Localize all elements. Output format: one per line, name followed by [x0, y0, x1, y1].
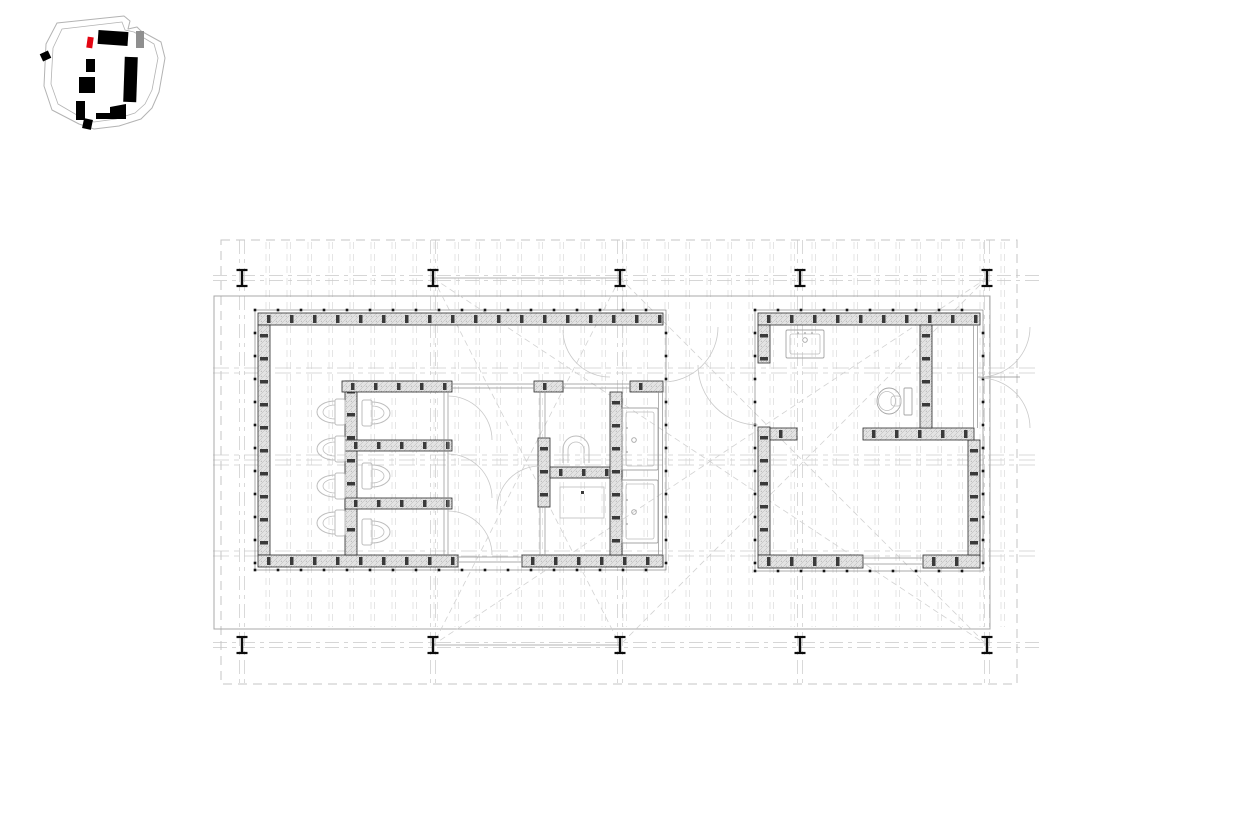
site-building	[96, 104, 126, 119]
wall-stud	[540, 447, 548, 451]
wall-stud	[623, 557, 627, 565]
site-building	[40, 50, 52, 61]
wall-stud	[813, 315, 817, 323]
sink-icon	[622, 480, 658, 543]
wall-stud	[374, 383, 378, 390]
wall-stud	[405, 315, 409, 323]
door-swing-arc	[980, 378, 1030, 428]
tap-dot	[804, 332, 806, 334]
wall-stud	[646, 557, 650, 565]
wall-stud	[612, 447, 620, 451]
door-swing-arc	[497, 466, 540, 509]
wall-stud	[543, 315, 547, 323]
tap-dot	[811, 332, 813, 334]
wall-stud	[964, 430, 968, 438]
wall-stud	[497, 315, 501, 323]
wall-segment	[770, 428, 797, 440]
wall-stud	[543, 383, 547, 390]
wall-stud	[354, 442, 358, 449]
wall-stud	[658, 315, 662, 323]
wall-stud	[582, 469, 586, 476]
wall-stud	[970, 472, 978, 476]
tap-dot	[626, 523, 628, 525]
wall-stud	[260, 449, 268, 453]
wall-stud	[970, 495, 978, 499]
wall-stud	[600, 557, 604, 565]
wall-stud	[612, 516, 620, 520]
floor-drain-icon	[581, 491, 584, 494]
floor-plan-drawing	[0, 0, 1256, 838]
wall-stud	[577, 557, 581, 565]
wall-stud	[397, 383, 401, 390]
wall-stud	[260, 541, 268, 545]
faucet-icon	[803, 338, 808, 343]
wall-stud	[290, 315, 294, 323]
tap-dot	[626, 451, 628, 453]
wall-stud	[612, 424, 620, 428]
wall-stud	[420, 383, 424, 390]
wall-stud	[423, 500, 427, 507]
wall-stud	[443, 383, 447, 390]
wall-stud	[347, 482, 355, 486]
i-column-icon	[982, 637, 993, 653]
site-building	[76, 101, 85, 120]
wall-stud	[922, 334, 930, 338]
cistern	[904, 388, 912, 415]
wall-stud	[951, 315, 955, 323]
wall-stud	[347, 528, 355, 532]
wall-stud	[955, 557, 959, 566]
urinal-icon	[563, 436, 589, 463]
wall-stud	[790, 557, 794, 566]
drawing-sheet	[0, 0, 1256, 838]
door-swing-arc	[563, 330, 610, 377]
i-column-icon	[795, 637, 806, 653]
wall-stud	[882, 315, 886, 323]
wall-stud	[760, 505, 768, 509]
wall-segment	[630, 381, 663, 392]
tap-dot	[626, 427, 628, 429]
wall-stud	[760, 459, 768, 463]
building-right	[698, 309, 1030, 573]
wall-stud	[400, 442, 404, 449]
cladding-joint-dots	[754, 309, 985, 573]
wall-stud	[313, 315, 317, 323]
wall-stud	[790, 315, 794, 323]
wall-stud	[423, 442, 427, 449]
wall-stud	[779, 430, 783, 438]
faucet-icon	[632, 438, 637, 443]
door-swing-arc	[980, 327, 1030, 377]
site-building	[98, 30, 129, 46]
i-column-icon	[795, 270, 806, 286]
toilet-icon	[877, 388, 912, 415]
wall-stud	[347, 459, 355, 463]
door-swings	[448, 327, 718, 555]
i-column-icon	[237, 270, 248, 286]
site-building	[86, 59, 95, 72]
wall-stud	[474, 315, 478, 323]
cladding-trim-line	[255, 310, 666, 570]
toilet-icon	[362, 519, 390, 545]
wall-stud	[872, 430, 876, 438]
wall-stud	[612, 401, 620, 405]
wall-segment	[920, 325, 932, 428]
wall-stud	[760, 357, 768, 361]
wall-stud	[859, 315, 863, 323]
wall-stud	[354, 500, 358, 507]
wall-stud	[760, 482, 768, 486]
sink-icon	[622, 408, 658, 470]
wall-stud	[382, 557, 386, 565]
toilet-icon	[317, 399, 345, 425]
wall-stud	[922, 357, 930, 361]
wall-segment	[758, 427, 770, 555]
cladding-trim-line	[755, 310, 983, 571]
door-swing-arc	[663, 327, 718, 382]
wall-segment	[758, 555, 863, 568]
wall-stud	[359, 315, 363, 323]
wall-stud	[347, 436, 355, 440]
wall-stud	[267, 315, 271, 323]
wall-stud	[612, 470, 620, 474]
site-building	[136, 31, 144, 48]
wall-stud	[589, 315, 593, 323]
wall-stud	[267, 557, 271, 565]
toilet-icon	[362, 400, 390, 426]
wall-stud	[451, 315, 455, 323]
wall-stud	[290, 557, 294, 565]
i-column-icon	[237, 637, 248, 653]
wall-segment	[345, 498, 452, 509]
wall-stud	[559, 469, 563, 476]
wall-stud	[260, 472, 268, 476]
wall-stud	[428, 315, 432, 323]
wall-stud	[260, 495, 268, 499]
wall-segment	[923, 555, 980, 568]
building-left	[254, 309, 718, 572]
wall-stud	[347, 413, 355, 417]
door-swing-arc	[448, 454, 492, 498]
wall-segment	[345, 440, 452, 451]
wall-stud	[531, 557, 535, 565]
wall-stud	[351, 383, 355, 390]
wall-stud	[336, 315, 340, 323]
site-building	[79, 77, 95, 93]
sink-icon	[786, 330, 824, 358]
wall-stud	[767, 315, 771, 323]
wall-stud	[377, 442, 381, 449]
wall-stud	[612, 493, 620, 497]
wall-stud	[382, 315, 386, 323]
toilet-icon	[317, 436, 345, 462]
wall-stud	[760, 334, 768, 338]
wall-stud	[813, 557, 817, 566]
wall-stud	[612, 539, 620, 543]
wall-stud	[400, 500, 404, 507]
wall-stud	[260, 426, 268, 430]
door-swing-arc	[448, 396, 492, 440]
wall-stud	[635, 315, 639, 323]
site-building	[123, 57, 138, 102]
wall-stud	[760, 528, 768, 532]
wall-stud	[932, 557, 936, 566]
wall-stud	[359, 557, 363, 565]
wall-stud	[895, 430, 899, 438]
wall-stud	[451, 557, 455, 565]
wall-stud	[428, 557, 432, 565]
toilet-icon	[317, 510, 345, 536]
wall-stud	[639, 383, 643, 390]
wall-stud	[260, 357, 268, 361]
wall-stud	[313, 557, 317, 565]
wall-stud	[260, 380, 268, 384]
wall-stud	[970, 518, 978, 522]
wall-stud	[377, 500, 381, 507]
wall-stud	[554, 557, 558, 565]
wall-segment	[522, 555, 663, 567]
wall-stud	[540, 493, 548, 497]
wall-stud	[836, 315, 840, 323]
wall-stud	[405, 557, 409, 565]
wall-stud	[974, 315, 978, 323]
toilet-icon	[362, 463, 390, 489]
tap-dot	[626, 499, 628, 501]
wall-stud	[540, 470, 548, 474]
wall-segment	[534, 381, 563, 392]
site-building-highlight	[86, 37, 93, 49]
wall-stud	[260, 334, 268, 338]
wall-stud	[520, 315, 524, 323]
wall-stud	[767, 557, 771, 566]
wall-stud	[941, 430, 945, 438]
wall-stud	[922, 403, 930, 407]
glazing-lines	[863, 325, 1020, 564]
wall-stud	[836, 557, 840, 566]
wall-stud	[760, 436, 768, 440]
wall-stud	[612, 315, 616, 323]
wall-stud	[918, 430, 922, 438]
wall-stud	[605, 469, 609, 476]
wall-segment	[258, 313, 663, 325]
wall-stud	[922, 380, 930, 384]
wall-stud	[566, 315, 570, 323]
wall-stud	[905, 315, 909, 323]
roof-brace-lines	[433, 278, 987, 645]
wall-stud	[970, 449, 978, 453]
tap-dot	[797, 332, 799, 334]
door-swing-arc	[448, 511, 492, 555]
wall-stud	[260, 518, 268, 522]
site-key-map	[40, 16, 165, 130]
wall-stud	[260, 403, 268, 407]
wall-stud	[970, 541, 978, 545]
toilet-icon	[317, 473, 345, 499]
wall-stud	[336, 557, 340, 565]
wall-stud	[928, 315, 932, 323]
